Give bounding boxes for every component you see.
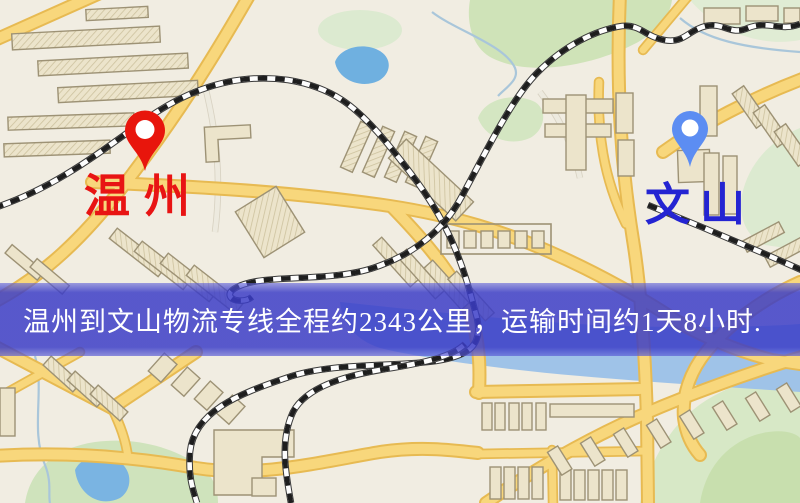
map-canvas: 温州 文山 温州到文山物流专线全程约2343公里，运输时间约1天8小时. — [0, 0, 800, 503]
origin-marker-label: 温州 — [84, 174, 204, 220]
route-info-banner: 温州到文山物流专线全程约2343公里，运输时间约1天8小时. — [0, 283, 800, 356]
destination-pin-hole — [682, 120, 699, 137]
destination-pin-shape — [672, 111, 708, 167]
destination-marker-label: 文山 — [645, 183, 755, 228]
map-background — [0, 0, 800, 503]
origin-pin-shape — [125, 111, 165, 172]
destination-pin-icon — [664, 103, 716, 168]
origin-pin-hole — [136, 120, 155, 139]
origin-pin-icon — [116, 102, 174, 172]
route-info-text: 温州到文山物流专线全程约2343公里，运输时间约1天8小时. — [0, 300, 762, 339]
